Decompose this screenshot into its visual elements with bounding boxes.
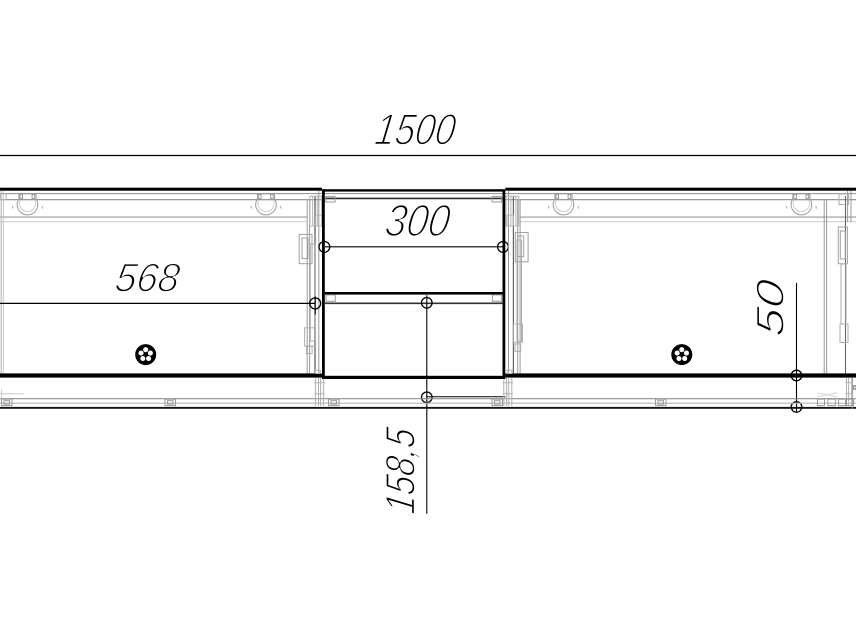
svg-text:158,5: 158,5 xyxy=(377,424,424,516)
svg-text:300: 300 xyxy=(382,195,454,246)
svg-text:1500: 1500 xyxy=(372,106,459,155)
svg-text:50: 50 xyxy=(750,276,793,338)
svg-text:568: 568 xyxy=(113,254,184,300)
